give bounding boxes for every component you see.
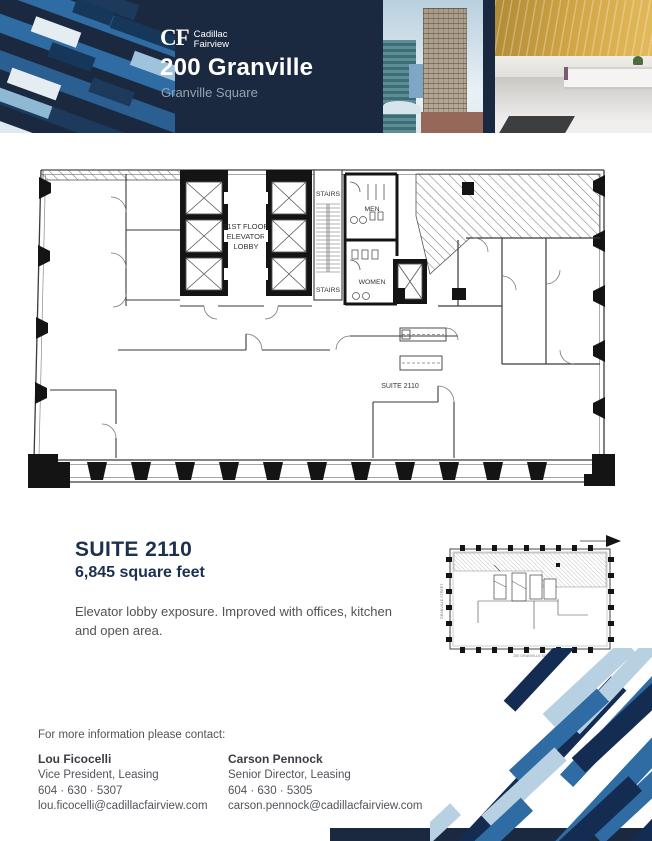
- contact-card-1: Lou Ficocelli Vice President, Leasing 60…: [38, 752, 238, 815]
- svg-text:LOBBY: LOBBY: [233, 242, 258, 251]
- elevator-bank-right: [264, 170, 312, 296]
- building-exterior-photo: [383, 0, 483, 133]
- contact-email[interactable]: carson.pennock@cadillacfairview.com: [228, 799, 428, 815]
- contact-phone: 604 · 630 · 5305: [228, 784, 428, 800]
- men-label: MEN: [364, 206, 379, 213]
- main-tower-shape: [423, 8, 467, 125]
- keyplan-north-arrow: [580, 535, 621, 547]
- gold-ceiling-shape: [495, 0, 652, 56]
- suite-interior: [50, 306, 458, 458]
- footer-weave-pattern: [430, 648, 652, 841]
- contact-card-2: Carson Pennock Senior Director, Leasing …: [228, 752, 428, 815]
- logo-name-line2: Fairview: [194, 40, 229, 50]
- stairs-top-label: STAIRS: [316, 191, 341, 198]
- svg-text:21ST FLOOR: 21ST FLOOR: [223, 222, 269, 231]
- left-offices: [111, 174, 180, 307]
- keyplan-street-left-label: GRANVILLE STREET: [440, 583, 444, 619]
- photo-divider: [483, 0, 495, 133]
- contact-name: Carson Pennock: [228, 752, 428, 768]
- contact-intro: For more information please contact:: [38, 729, 225, 741]
- contact-email[interactable]: lou.ficocelli@cadillacfairview.com: [38, 799, 238, 815]
- floor-plan-drawing: 21ST FLOOR ELEVATOR LOBBY STAIRS STAIRS: [14, 156, 638, 500]
- women-label: WOMEN: [359, 279, 386, 286]
- contact-name: Lou Ficocelli: [38, 752, 238, 768]
- plant-shape: [633, 56, 643, 65]
- logo-monogram: CF: [160, 28, 189, 48]
- contact-title: Senior Director, Leasing: [228, 768, 428, 784]
- person-shape: [564, 67, 568, 80]
- reception-desk-shape: [564, 67, 652, 90]
- key-plan-thumbnail: GRANVILLE STREET 200 GRANVILLE SQ: [438, 531, 623, 661]
- suite-description: Elevator lobby exposure. Improved with o…: [75, 602, 410, 640]
- mountain-shape: [383, 101, 421, 114]
- stairwell: STAIRS STAIRS: [314, 170, 342, 300]
- cadillac-fairview-logo: CF Cadillac Fairview: [160, 28, 229, 50]
- header-weave-pattern: [0, 0, 175, 133]
- low-buildings-shape: [421, 112, 483, 133]
- washrooms: MEN WOMEN: [345, 174, 397, 305]
- flyer-page: CF Cadillac Fairview 200 Granville Granv…: [0, 0, 652, 841]
- lobby-interior-photo: [495, 0, 652, 133]
- floor-mat-shape: [499, 116, 575, 133]
- suite-title: SUITE 2110: [75, 538, 192, 562]
- suite-area: 6,845 square feet: [75, 564, 205, 582]
- elevator-bank-left: [180, 170, 229, 296]
- contact-title: Vice President, Leasing: [38, 768, 238, 784]
- contact-phone: 604 · 630 · 5307: [38, 784, 238, 800]
- elevator-lobby-label: 21ST FLOOR ELEVATOR LOBBY: [223, 222, 269, 251]
- suite-label: SUITE 2110: [381, 383, 419, 390]
- header-banner: CF Cadillac Fairview 200 Granville Granv…: [0, 0, 652, 133]
- svg-text:ELEVATOR: ELEVATOR: [227, 232, 266, 241]
- stairs-bottom-label: STAIRS: [316, 287, 341, 294]
- building-title: 200 Granville: [160, 54, 313, 82]
- building-subtitle: Granville Square: [161, 85, 258, 100]
